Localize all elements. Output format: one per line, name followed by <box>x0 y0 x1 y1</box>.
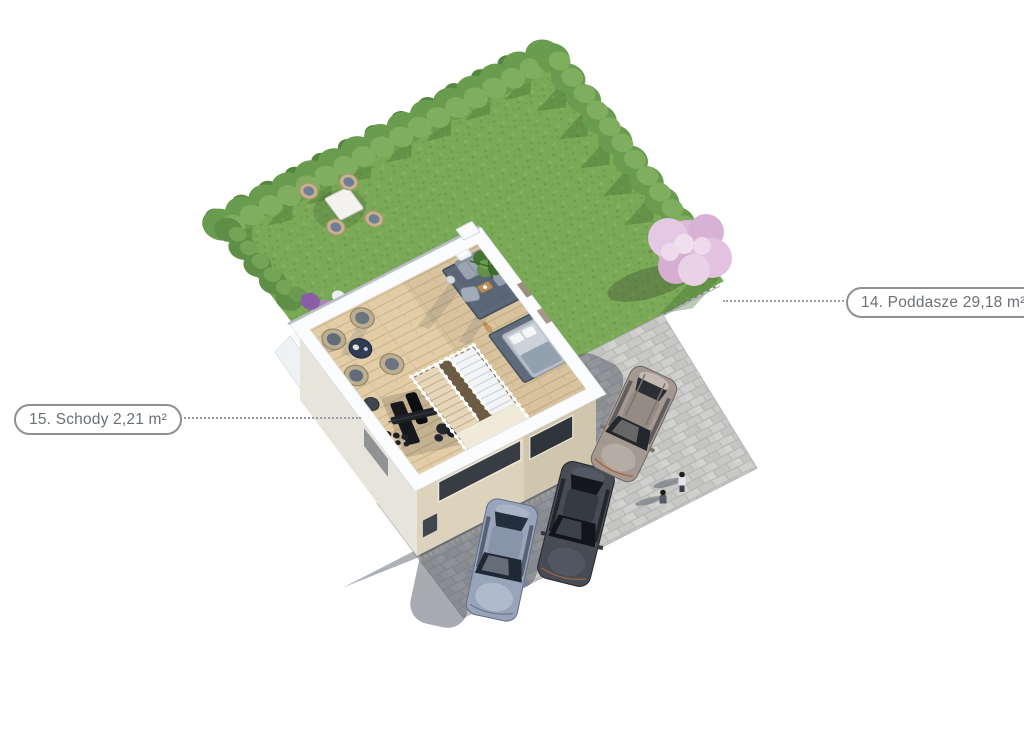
label-schody-pill[interactable]: 15. Schody 2,21 m² <box>14 404 182 435</box>
label-poddasze-text: 14. Poddasze 29,18 m² <box>861 294 1024 312</box>
label-schody-text: 15. Schody 2,21 m² <box>29 411 167 429</box>
leader-line-schody <box>177 417 361 419</box>
site-plan-render <box>0 0 1024 729</box>
person <box>660 490 667 510</box>
leader-line-poddasze <box>723 300 844 302</box>
label-poddasze-pill[interactable]: 14. Poddasze 29,18 m² <box>846 287 1024 318</box>
floorplan-render-page: 15. Schody 2,21 m² 14. Poddasze 29,18 m² <box>0 0 1024 729</box>
person <box>679 472 686 492</box>
